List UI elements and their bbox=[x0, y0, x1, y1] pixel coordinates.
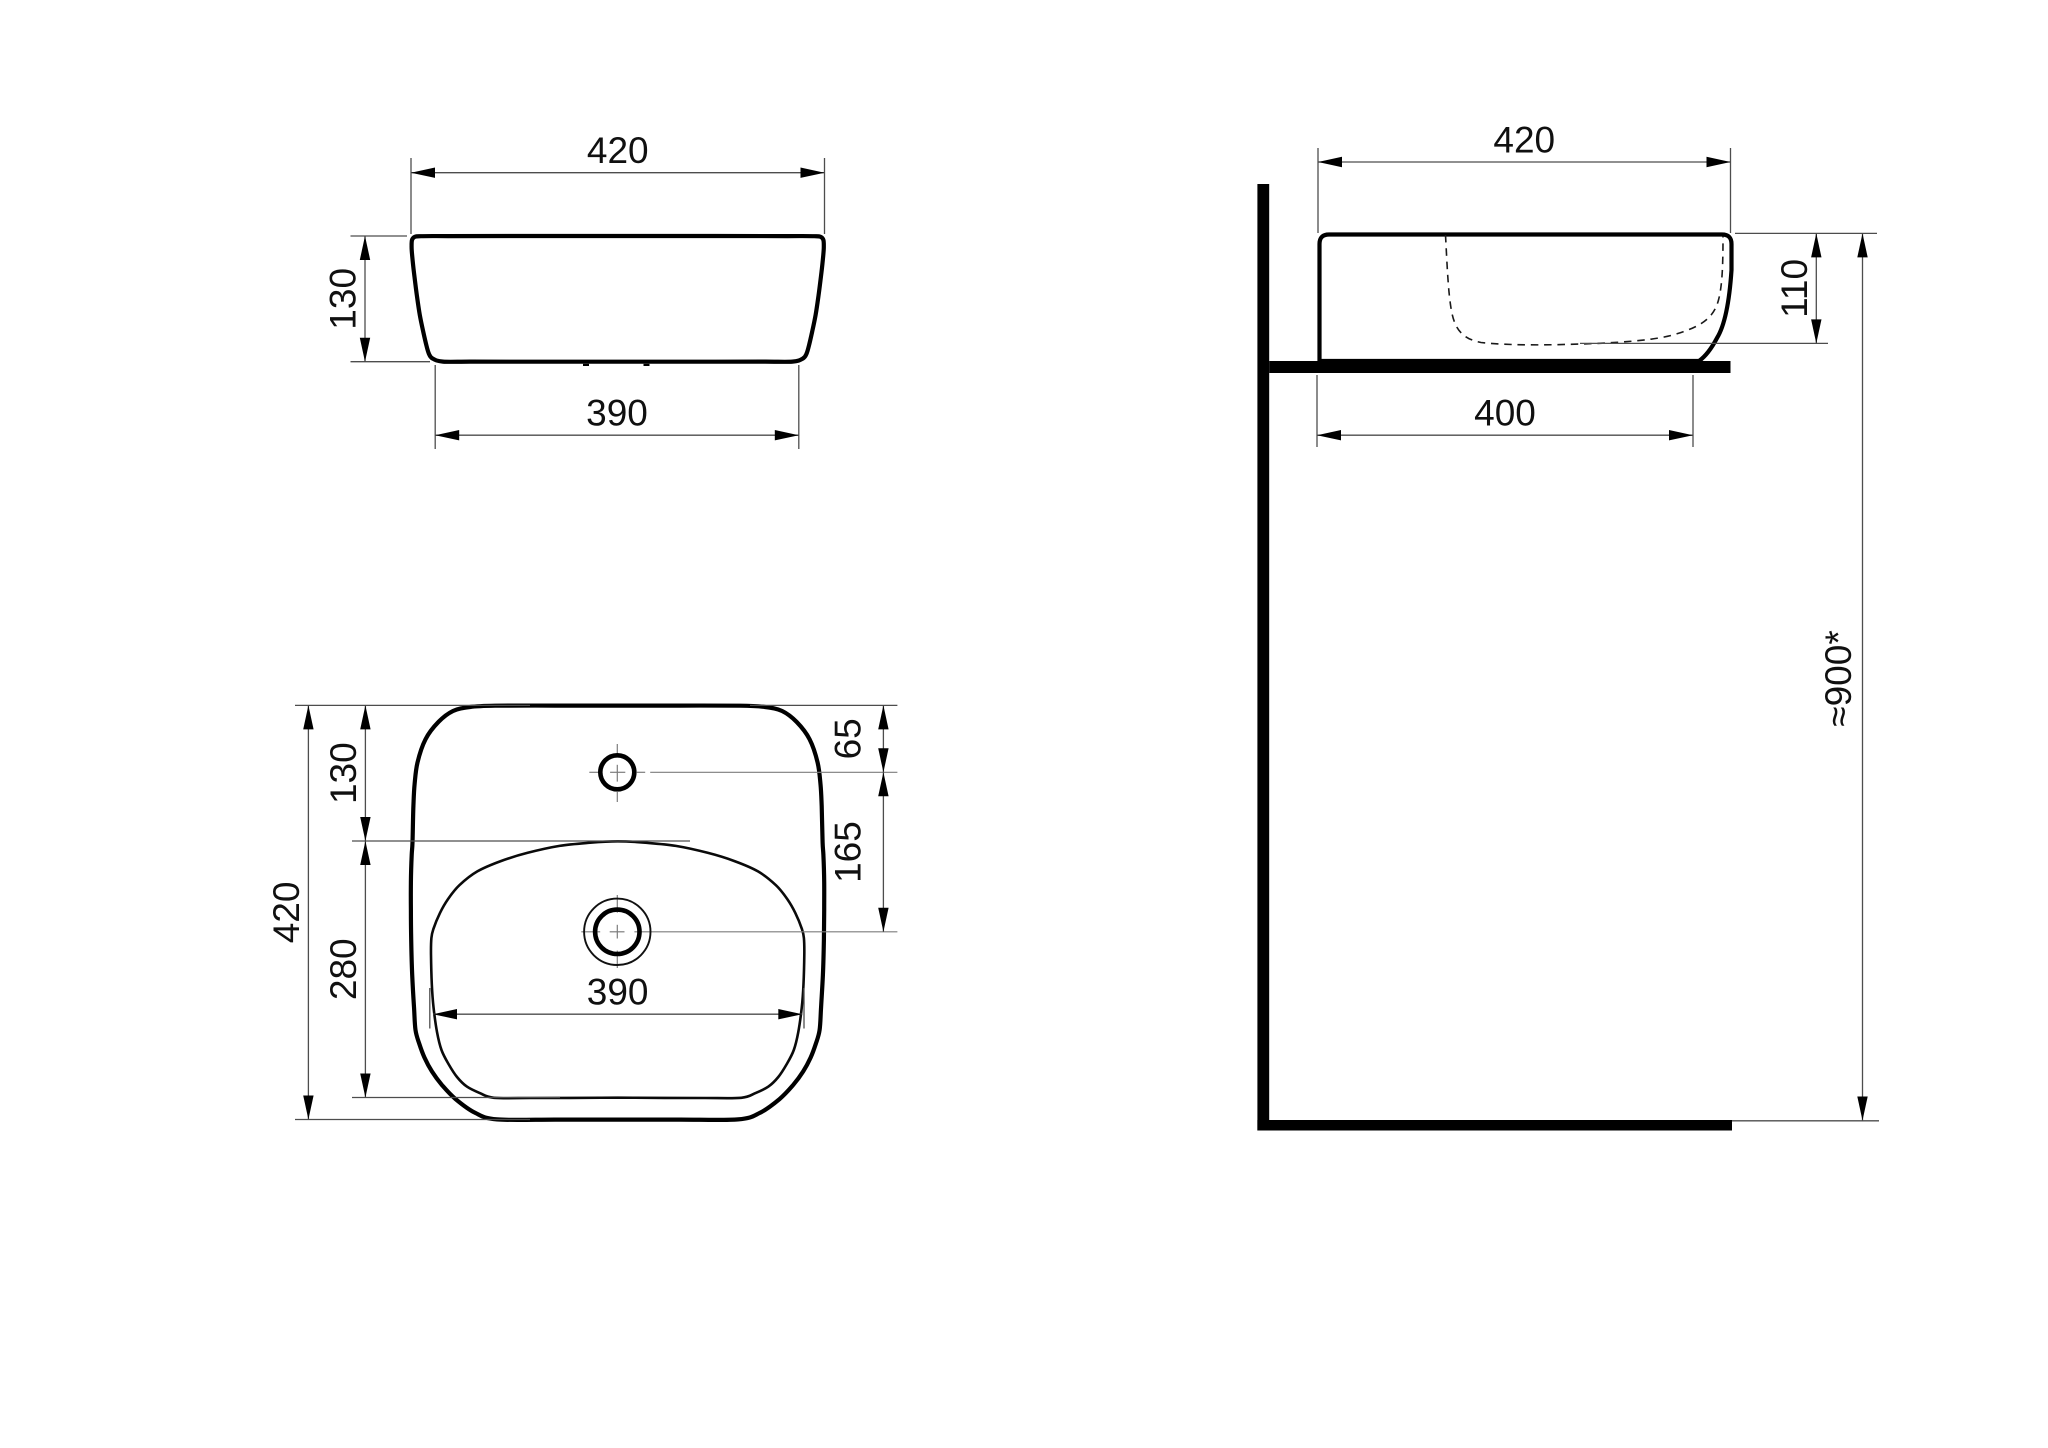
svg-text:110: 110 bbox=[1774, 259, 1815, 318]
svg-text:130: 130 bbox=[323, 742, 364, 804]
svg-text:65: 65 bbox=[827, 718, 868, 759]
svg-text:420: 420 bbox=[266, 882, 307, 944]
svg-text:130: 130 bbox=[323, 268, 364, 330]
svg-text:400: 400 bbox=[1474, 393, 1536, 434]
svg-text:420: 420 bbox=[1493, 120, 1555, 161]
svg-text:390: 390 bbox=[586, 393, 648, 434]
svg-text:≈900*: ≈900* bbox=[1818, 630, 1859, 726]
svg-text:420: 420 bbox=[587, 130, 649, 171]
svg-text:280: 280 bbox=[323, 938, 364, 1000]
svg-text:165: 165 bbox=[827, 821, 868, 883]
svg-text:390: 390 bbox=[587, 972, 649, 1013]
